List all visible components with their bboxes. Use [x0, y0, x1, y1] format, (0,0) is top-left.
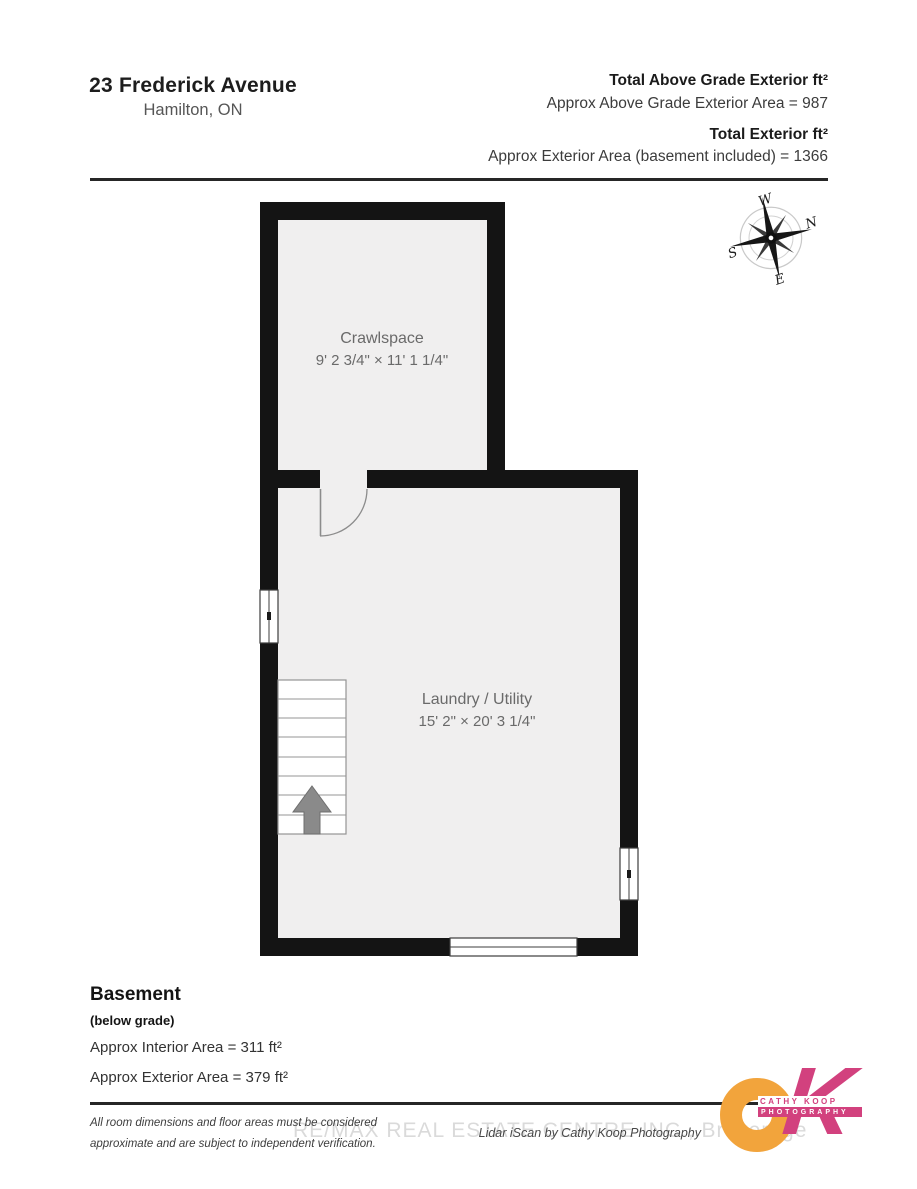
window-right: [620, 848, 638, 900]
disclaimer-line-1: All room dimensions and floor areas must…: [90, 1113, 377, 1134]
compass-east-label: E: [772, 271, 787, 289]
basement-floor-plan: [250, 195, 650, 970]
disclaimer-text: All room dimensions and floor areas must…: [90, 1113, 377, 1154]
photography-credit: Lidar iScan by Cathy Koop Photography: [479, 1126, 701, 1140]
room-label-crawlspace: Crawlspace 9' 2 3/4" × 11' 1 1/4": [272, 328, 492, 371]
cathy-koop-photography-logo: K CATHY KOOP PHOTOGRAPHY: [714, 1070, 909, 1182]
room-label-laundry-utility: Laundry / Utility 15' 2" × 20' 3 1/4": [327, 689, 627, 732]
door-opening: [320, 469, 367, 489]
room-name: Crawlspace: [272, 328, 492, 350]
compass-rose-icon: W N S E: [720, 190, 822, 292]
total-exterior-label: Total Exterior ft²: [408, 126, 828, 144]
room-dimensions: 15' 2" × 20' 3 1/4": [327, 711, 627, 732]
header-divider: [90, 178, 828, 181]
interior-area-text: Approx Interior Area = 311 ft²: [90, 1039, 282, 1056]
window-left: [260, 590, 278, 643]
logo-name-line2: PHOTOGRAPHY: [758, 1107, 862, 1117]
compass-south-label: S: [726, 245, 739, 262]
floor-subtitle: (below grade): [90, 1013, 175, 1028]
floor-title: Basement: [90, 984, 181, 1006]
total-exterior-value: Approx Exterior Area (basement included)…: [408, 148, 828, 166]
property-city: Hamilton, ON: [88, 101, 298, 120]
exterior-area-text: Approx Exterior Area = 379 ft²: [90, 1069, 288, 1086]
total-above-grade-value: Approx Above Grade Exterior Area = 987: [408, 95, 828, 113]
logo-name-line1: CATHY KOOP: [758, 1096, 862, 1107]
room-name: Laundry / Utility: [327, 689, 627, 711]
total-above-grade-label: Total Above Grade Exterior ft²: [408, 72, 828, 90]
window-bottom: [450, 938, 577, 956]
property-address: 23 Frederick Avenue: [88, 74, 298, 98]
logo-name: CATHY KOOP PHOTOGRAPHY: [758, 1096, 862, 1117]
disclaimer-line-2: approximate and are subject to independe…: [90, 1134, 377, 1155]
floor-plan-page: 23 Frederick Avenue Hamilton, ON Total A…: [0, 0, 917, 1189]
room-dimensions: 9' 2 3/4" × 11' 1 1/4": [272, 350, 492, 371]
